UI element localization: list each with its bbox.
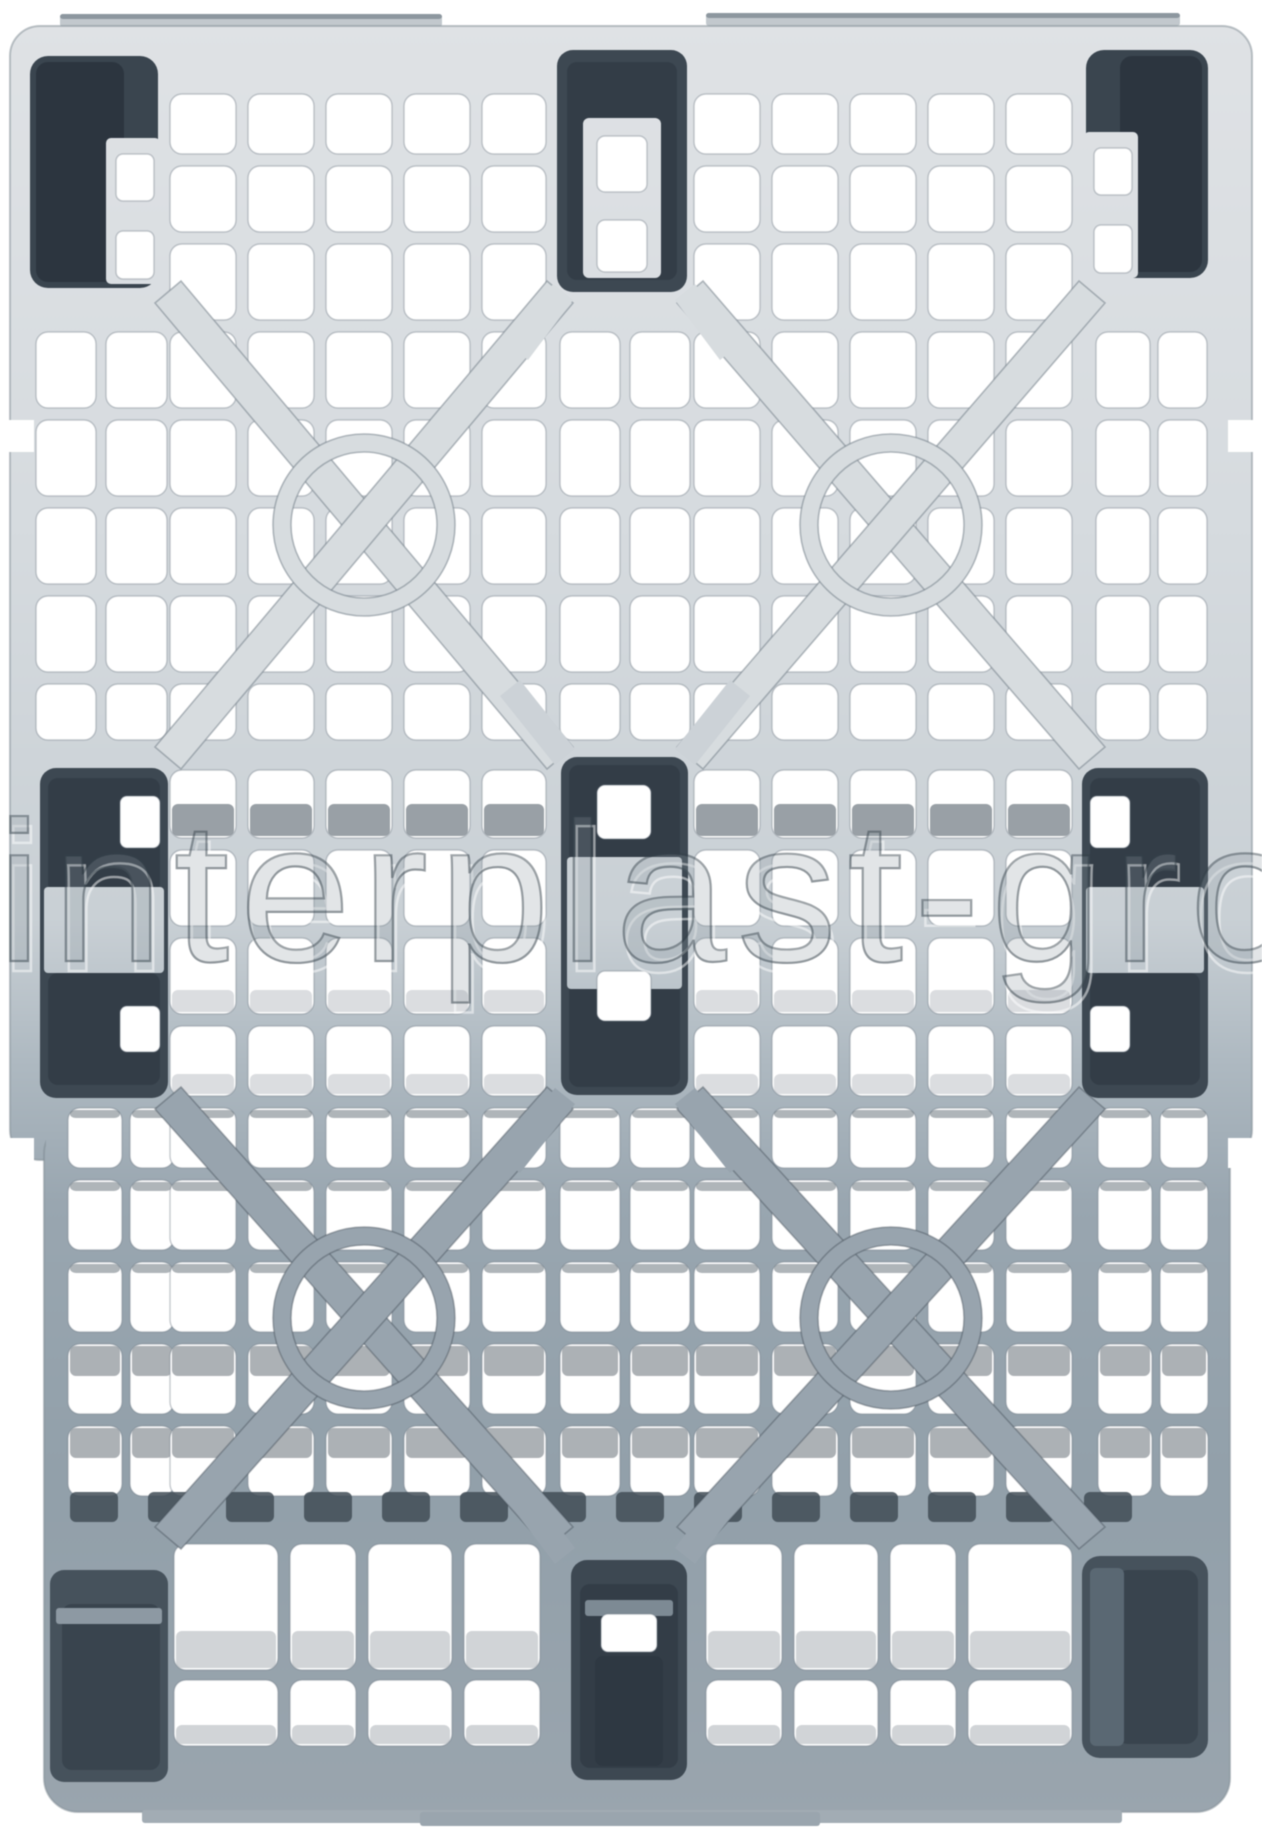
svg-text:interplast-gro: interplast-gro bbox=[0, 781, 1262, 1004]
